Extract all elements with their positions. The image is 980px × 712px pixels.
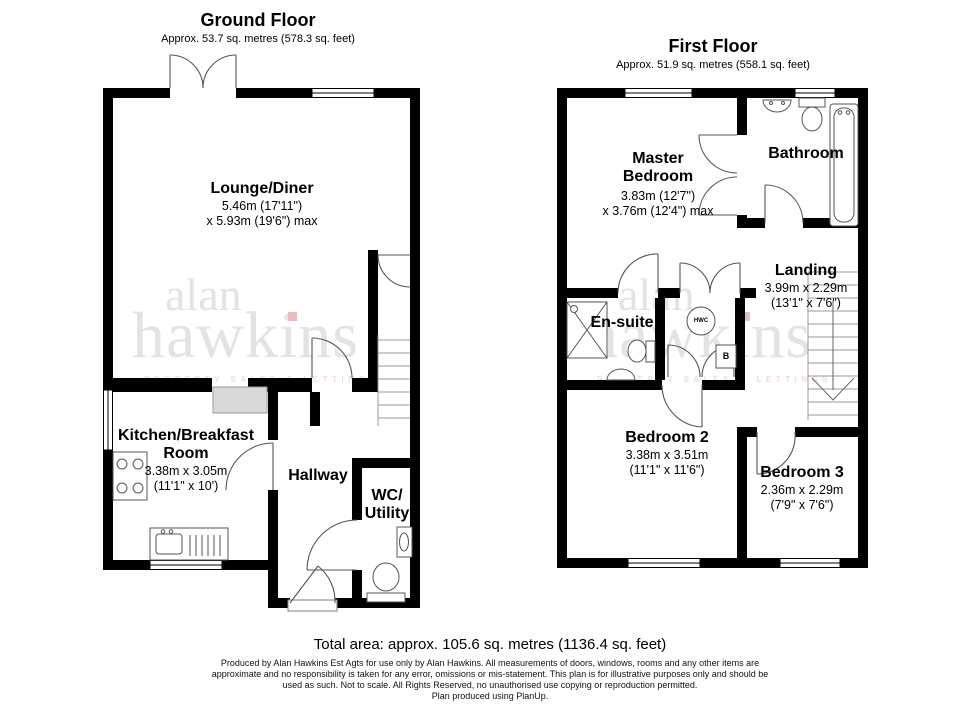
bath-icon: [830, 104, 858, 226]
total-area-text: Total area: approx. 105.6 sq. metres (11…: [314, 636, 666, 653]
room-label-wc-line1: WC/: [371, 487, 402, 505]
ensuite-toilet-icon: [628, 340, 655, 362]
room-dims-bedroom3-1: 2.36m x 2.29m: [761, 483, 844, 497]
room-label-kitchen: Kitchen/Breakfast Room: [99, 427, 274, 464]
master-double-doors-icon: [680, 263, 740, 293]
floorplan-drawing: [0, 0, 980, 640]
room-label-hallway: Hallway: [288, 467, 348, 485]
room-dims-bedroom2-2: (11'1" x 11'6"): [629, 463, 704, 477]
room-dims-master-2: x 3.76m (12'4") max: [602, 204, 713, 218]
room-label-bedroom3: Bedroom 3: [760, 464, 844, 482]
room-label-master: Master Bedroom: [603, 150, 713, 187]
disclaimer-line-3: used as such. Not to scale. All Rights R…: [283, 680, 698, 691]
first-floor-subtitle: Approx. 51.9 sq. metres (558.1 sq. feet): [616, 59, 810, 71]
disclaimer-line-1: Produced by Alan Hawkins Est Agts for us…: [221, 658, 759, 669]
room-label-landing: Landing: [775, 262, 837, 280]
room-label-bedroom2: Bedroom 2: [625, 429, 709, 447]
ground-stairs-icon: [378, 335, 410, 426]
ground-floor-subtitle: Approx. 53.7 sq. metres (578.3 sq. feet): [161, 33, 355, 45]
stairs-door-icon: [378, 255, 410, 287]
room-label-wc-line2: Utility: [365, 505, 409, 523]
room-dims-lounge-2: x 5.93m (19'6") max: [206, 214, 317, 228]
worktop: [213, 387, 267, 413]
kitchen-sink-icon: [150, 528, 228, 560]
room-dims-kitchen-1: 3.38m x 3.05m: [145, 464, 228, 478]
wc-toilet-icon: [367, 563, 405, 602]
disclaimer-line-4: Plan produced using PlanUp.: [432, 691, 549, 702]
bathroom-door-icon: [765, 185, 803, 223]
room-dims-bedroom3-2: (7'9" x 7'6"): [771, 498, 834, 512]
wc-door-icon: [307, 520, 357, 570]
bedroom2-door-icon: [662, 385, 702, 427]
room-dims-kitchen-2: (11'1" x 10'): [154, 479, 219, 493]
ensuite-door-icon: [618, 254, 658, 293]
room-dims-landing-1: 3.99m x 2.29m: [765, 281, 848, 295]
bathroom-toilet-icon: [799, 98, 825, 131]
french-doors-icon: [170, 55, 236, 88]
lounge-hall-door-icon: [312, 338, 352, 378]
front-door-icon: [288, 566, 337, 611]
room-dims-landing-2: (13'1" x 7'6"): [771, 296, 841, 310]
hwc-label: HWC: [694, 318, 708, 324]
room-label-lounge: Lounge/Diner: [210, 180, 313, 198]
room-label-bathroom: Bathroom: [768, 145, 844, 163]
ensuite-basin-icon: [607, 369, 635, 380]
ground-floor-title: Ground Floor: [201, 10, 316, 31]
wc-basin-icon: [397, 527, 412, 557]
room-label-ensuite: En-suite: [590, 314, 653, 332]
first-floor-title: First Floor: [669, 36, 758, 57]
boiler-label: B: [723, 351, 730, 361]
bathroom-sink-icon: [763, 100, 791, 112]
room-dims-master-1: 3.83m (12'7"): [621, 189, 695, 203]
room-dims-bedroom2-1: 3.38m x 3.51m: [626, 448, 709, 462]
floorplan-page: alan hawkins PROPERTY SALES & LETTINGS a…: [0, 0, 980, 712]
disclaimer-line-2: approximate and no responsibility is tak…: [212, 669, 769, 680]
room-dims-lounge-1: 5.46m (17'11"): [222, 199, 302, 213]
ground-floor-plan: [103, 55, 420, 611]
